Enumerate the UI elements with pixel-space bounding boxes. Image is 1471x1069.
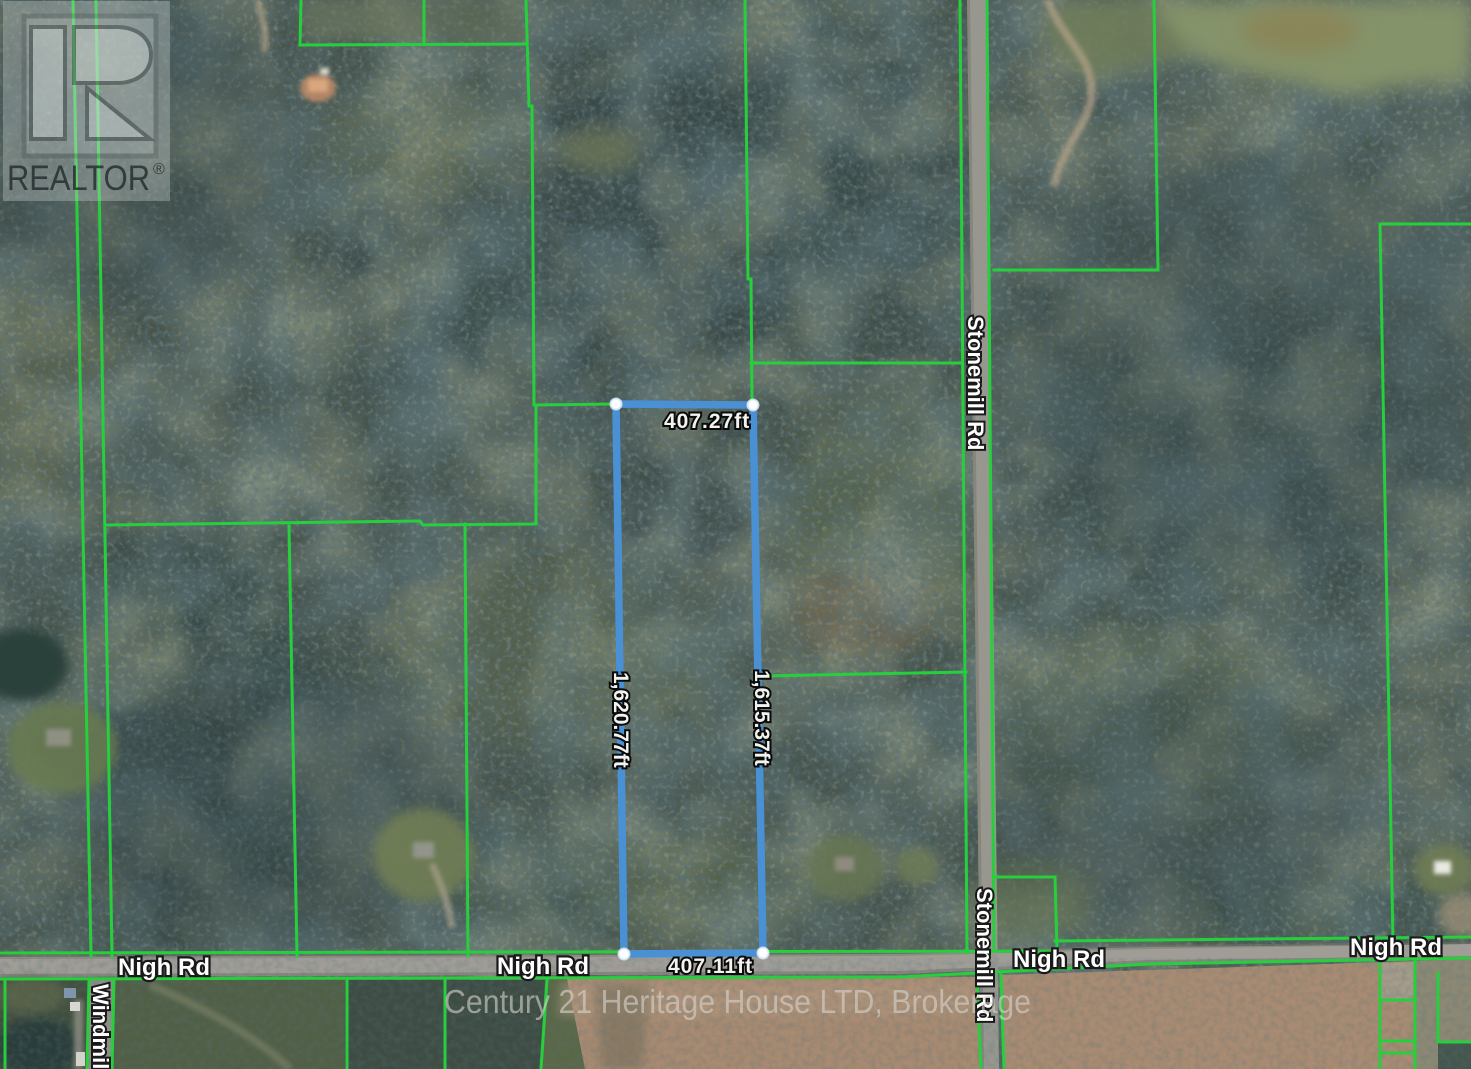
svg-text:Nigh Rd: Nigh Rd xyxy=(497,953,589,980)
svg-text:REALTOR: REALTOR xyxy=(7,159,150,198)
svg-text:Nigh Rd: Nigh Rd xyxy=(1350,934,1442,961)
svg-text:Century 21 Heritage House LTD,: Century 21 Heritage House LTD, Brokerage xyxy=(444,983,1031,1020)
svg-text:Nigh Rd: Nigh Rd xyxy=(118,954,210,981)
svg-text:Stonemill Rd: Stonemill Rd xyxy=(963,316,988,450)
svg-text:Windmill: Windmill xyxy=(88,984,113,1069)
svg-text:407.27ft: 407.27ft xyxy=(664,410,750,433)
svg-text:®: ® xyxy=(153,161,165,178)
svg-text:Nigh Rd: Nigh Rd xyxy=(1013,946,1105,973)
svg-text:1,615.37ft: 1,615.37ft xyxy=(750,670,773,766)
svg-text:1,620.77ft: 1,620.77ft xyxy=(609,672,632,768)
svg-text:407.11ft: 407.11ft xyxy=(668,955,753,978)
